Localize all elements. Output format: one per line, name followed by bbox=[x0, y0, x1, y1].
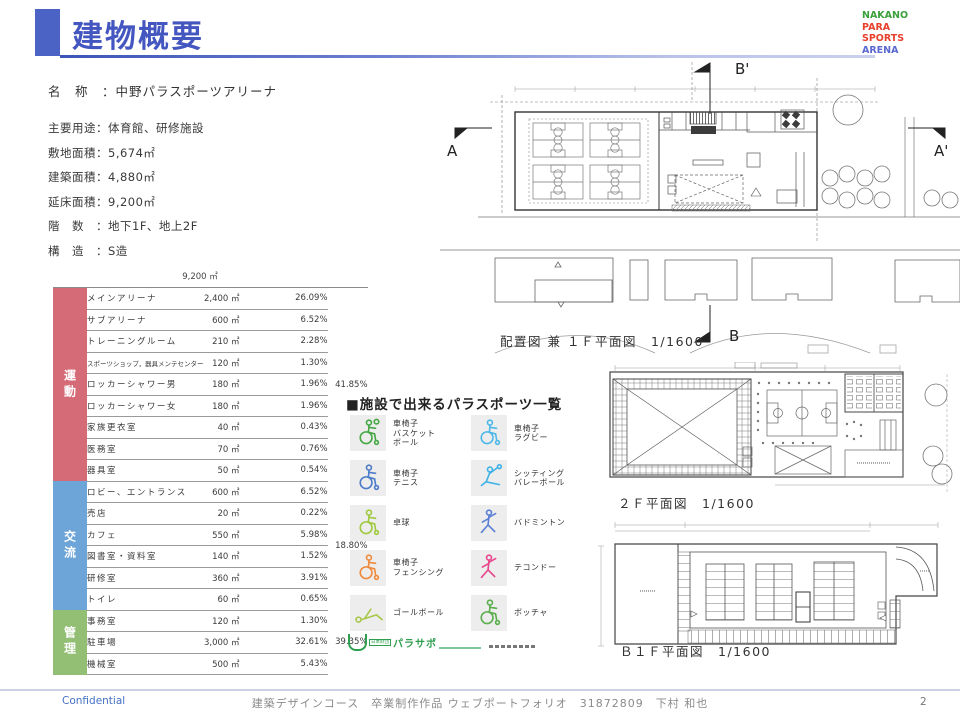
logo-line: SPORTS bbox=[862, 33, 946, 45]
room-name-cell: カフェ bbox=[87, 524, 204, 546]
room-name-cell: ロビー、エントランス bbox=[87, 481, 204, 503]
wheelchair-rugby-icon bbox=[471, 415, 507, 451]
sports-grid: 車椅子 バスケット ボール車椅子 ラグビー車椅子 テニスシッティング バレーボー… bbox=[350, 411, 589, 635]
parasapo-logo: 日本財団 パラサポ bbox=[348, 634, 535, 651]
logo-line: ARENA bbox=[862, 45, 946, 57]
footer-rule bbox=[0, 689, 960, 691]
sport-item: 車椅子 フェンシング bbox=[350, 545, 471, 590]
table-row: 運動メインアリーナ2,400 ㎡26.09%41.85% bbox=[53, 288, 368, 310]
logo-line: NAKANO bbox=[862, 10, 946, 22]
sport-item: 車椅子 バスケット ボール bbox=[350, 411, 471, 456]
table-row: トレーニングルーム210 ㎡2.28% bbox=[53, 331, 368, 353]
sport-label: 車椅子 バスケット ボール bbox=[393, 419, 436, 448]
table-row: カフェ550 ㎡5.98% bbox=[53, 524, 368, 546]
nakano-para-sports-arena-logo: NAKANOPARASPORTSARENA bbox=[862, 10, 946, 56]
room-name-cell: ロッカーシャワー男 bbox=[87, 374, 204, 396]
area-table-wrap: 運動メインアリーナ2,400 ㎡26.09%41.85%サブアリーナ600 ㎡6… bbox=[53, 287, 368, 675]
room-pct-cell: 0.76% bbox=[240, 438, 328, 460]
room-name-cell: スポーツショップ，器具メンテセンター bbox=[87, 352, 204, 374]
plan2-caption: ２Ｆ平面図 1/1600 bbox=[618, 493, 755, 512]
table-row: ロッカーシャワー女180 ㎡1.96% bbox=[53, 395, 368, 417]
parasapo-mark-icon bbox=[348, 634, 367, 651]
room-pct-cell: 3.91% bbox=[240, 567, 328, 589]
room-pct-cell: 0.65% bbox=[240, 589, 328, 611]
wheelchair-tennis-icon bbox=[350, 460, 386, 496]
badminton-icon bbox=[471, 505, 507, 541]
wheelchair-fencing-icon bbox=[350, 550, 386, 586]
building-name-line: 名 称 ：中野パラスポーツアリーナ bbox=[48, 81, 277, 100]
room-pct-cell: 5.43% bbox=[240, 653, 328, 675]
plan1-caption: 配置図 兼 １Ｆ平面図 1/1600 bbox=[500, 331, 704, 350]
room-pct-cell: 1.96% bbox=[240, 374, 328, 396]
room-name-cell: 研修室 bbox=[87, 567, 204, 589]
building-info-line: 延床面積：9,200㎡ bbox=[48, 194, 204, 219]
room-name-cell: 売店 bbox=[87, 503, 204, 525]
section-marker-a-prime: A' bbox=[934, 142, 948, 160]
table-row: トイレ60 ㎡0.65% bbox=[53, 589, 368, 611]
table-row: 研修室360 ㎡3.91% bbox=[53, 567, 368, 589]
table-row: 器具室50 ㎡0.54% bbox=[53, 460, 368, 482]
room-area-cell: 600 ㎡ bbox=[204, 309, 240, 331]
table-row: スポーツショップ，器具メンテセンター120 ㎡1.30% bbox=[53, 352, 368, 374]
sitting-volleyball-icon bbox=[471, 460, 507, 496]
category-cell: 運動 bbox=[53, 288, 87, 482]
room-area-cell: 50 ㎡ bbox=[204, 460, 240, 482]
category-cell: 交流 bbox=[53, 481, 87, 610]
table-row: 管理事務室120 ㎡1.30%39.35% bbox=[53, 610, 368, 632]
room-name-cell: 図書室・資料室 bbox=[87, 546, 204, 568]
area-table: 運動メインアリーナ2,400 ㎡26.09%41.85%サブアリーナ600 ㎡6… bbox=[53, 287, 368, 675]
table-row: サブアリーナ600 ㎡6.52% bbox=[53, 309, 368, 331]
sport-item: シッティング バレーボール bbox=[471, 456, 589, 501]
sport-label: 車椅子 フェンシング bbox=[393, 558, 444, 577]
header-rule bbox=[60, 55, 875, 58]
table-row: 医務室70 ㎡0.76% bbox=[53, 438, 368, 460]
sport-item: テコンドー bbox=[471, 545, 589, 590]
boccia-icon bbox=[471, 595, 507, 631]
section-marker-b: B bbox=[729, 327, 739, 345]
room-name-cell: トイレ bbox=[87, 589, 204, 611]
footer-credit: 建築デザインコース 卒業制作作品 ウェブポートフォリオ 31872809 下村 … bbox=[0, 695, 960, 711]
page-number: 2 bbox=[920, 696, 927, 708]
room-pct-cell: 6.52% bbox=[240, 309, 328, 331]
room-name-cell: サブアリーナ bbox=[87, 309, 204, 331]
room-name-cell: 器具室 bbox=[87, 460, 204, 482]
sport-label: バドミントン bbox=[514, 518, 565, 528]
room-pct-cell: 1.52% bbox=[240, 546, 328, 568]
building-info-list: 主要用途：体育館、研修施設敷地面積：5,674㎡建築面積：4,880㎡延床面積：… bbox=[48, 120, 204, 268]
table-row: 機械室500 ㎡5.43% bbox=[53, 653, 368, 675]
sport-label: シッティング バレーボール bbox=[514, 469, 565, 488]
building-info-line: 建築面積：4,880㎡ bbox=[48, 169, 204, 194]
room-name-cell: トレーニングルーム bbox=[87, 331, 204, 353]
sport-item: 車椅子 テニス bbox=[350, 456, 471, 501]
room-area-cell: 70 ㎡ bbox=[204, 438, 240, 460]
parasapo-subline bbox=[439, 647, 481, 649]
room-name-cell: 機械室 bbox=[87, 653, 204, 675]
room-area-cell: 120 ㎡ bbox=[204, 352, 240, 374]
logo-line: PARA bbox=[862, 22, 946, 34]
table-row: 売店20 ㎡0.22% bbox=[53, 503, 368, 525]
sport-item: 車椅子 ラグビー bbox=[471, 411, 589, 456]
room-pct-cell: 2.28% bbox=[240, 331, 328, 353]
table-row: 家族更衣室40 ㎡0.43% bbox=[53, 417, 368, 439]
room-name-cell: 家族更衣室 bbox=[87, 417, 204, 439]
room-area-cell: 600 ㎡ bbox=[204, 481, 240, 503]
section-marker-b-prime: B' bbox=[735, 60, 749, 78]
room-name-cell: 事務室 bbox=[87, 610, 204, 632]
room-name-cell: メインアリーナ bbox=[87, 288, 204, 310]
section-marker-a: A bbox=[447, 142, 457, 160]
room-pct-cell: 0.43% bbox=[240, 417, 328, 439]
sport-label: 車椅子 ラグビー bbox=[514, 424, 548, 443]
title-accent-square bbox=[35, 9, 60, 56]
room-pct-cell: 0.22% bbox=[240, 503, 328, 525]
category-cell: 管理 bbox=[53, 610, 87, 675]
taekwondo-icon bbox=[471, 550, 507, 586]
parasapo-name: パラサポ bbox=[393, 635, 437, 650]
plan-2f-drawing bbox=[595, 362, 960, 500]
room-pct-cell: 6.52% bbox=[240, 481, 328, 503]
room-area-cell: 20 ㎡ bbox=[204, 503, 240, 525]
sport-label: 車椅子 テニス bbox=[393, 469, 419, 488]
room-name-cell: ロッカーシャワー女 bbox=[87, 395, 204, 417]
sport-item: 卓球 bbox=[350, 501, 471, 546]
page-title: 建物概要 bbox=[72, 11, 204, 56]
table-row: 交流ロビー、エントランス600 ㎡6.52%18.80% bbox=[53, 481, 368, 503]
credit-fine-print bbox=[489, 645, 535, 648]
room-area-cell: 180 ㎡ bbox=[204, 395, 240, 417]
room-pct-cell: 1.30% bbox=[240, 352, 328, 374]
room-pct-cell: 32.61% bbox=[240, 632, 328, 654]
building-info-line: 敷地面積：5,674㎡ bbox=[48, 145, 204, 170]
room-name-cell: 駐車場 bbox=[87, 632, 204, 654]
room-area-cell: 210 ㎡ bbox=[204, 331, 240, 353]
sports-list-heading: ■施設で出来るパラスポーツ一覧 bbox=[346, 393, 562, 413]
room-pct-cell: 0.54% bbox=[240, 460, 328, 482]
room-area-cell: 40 ㎡ bbox=[204, 417, 240, 439]
table-row: ロッカーシャワー男180 ㎡1.96% bbox=[53, 374, 368, 396]
room-area-cell: 500 ㎡ bbox=[204, 653, 240, 675]
slide: { "page": {"title": "建物概要"}, "logo": {"l… bbox=[0, 0, 960, 720]
wheelchair-basketball-icon bbox=[350, 415, 386, 451]
room-area-cell: 140 ㎡ bbox=[204, 546, 240, 568]
building-info-line: 階 数 ：地下1F、地上2F bbox=[48, 218, 204, 243]
site-plan-1f-drawing bbox=[440, 62, 960, 354]
total-area-label: 9,200 ㎡ bbox=[168, 270, 232, 282]
sport-item: ボッチャ bbox=[471, 590, 589, 635]
goalball-icon bbox=[350, 595, 386, 631]
room-area-cell: 550 ㎡ bbox=[204, 524, 240, 546]
room-area-cell: 180 ㎡ bbox=[204, 374, 240, 396]
sport-label: ボッチャ bbox=[514, 608, 548, 618]
room-pct-cell: 26.09% bbox=[240, 288, 328, 310]
sport-label: ゴールボール bbox=[393, 608, 444, 618]
room-area-cell: 120 ㎡ bbox=[204, 610, 240, 632]
sport-label: 卓球 bbox=[393, 518, 410, 528]
room-pct-cell: 5.98% bbox=[240, 524, 328, 546]
room-area-cell: 60 ㎡ bbox=[204, 589, 240, 611]
sport-item: ゴールボール bbox=[350, 590, 471, 635]
table-row: 駐車場3,000 ㎡32.61% bbox=[53, 632, 368, 654]
building-info-line: 構 造 ：S造 bbox=[48, 243, 204, 268]
building-info-line: 主要用途：体育館、研修施設 bbox=[48, 120, 204, 145]
room-name-cell: 医務室 bbox=[87, 438, 204, 460]
table-row: 図書室・資料室140 ㎡1.52% bbox=[53, 546, 368, 568]
room-area-cell: 2,400 ㎡ bbox=[204, 288, 240, 310]
sport-item: バドミントン bbox=[471, 501, 589, 546]
table-tennis-icon bbox=[350, 505, 386, 541]
room-pct-cell: 1.96% bbox=[240, 395, 328, 417]
room-pct-cell: 1.30% bbox=[240, 610, 328, 632]
parasapo-org-label: 日本財団 bbox=[369, 639, 391, 646]
room-area-cell: 360 ㎡ bbox=[204, 567, 240, 589]
sport-label: テコンドー bbox=[514, 563, 557, 573]
plan3-caption: Ｂ１Ｆ平面図 1/1600 bbox=[620, 641, 771, 660]
room-area-cell: 3,000 ㎡ bbox=[204, 632, 240, 654]
